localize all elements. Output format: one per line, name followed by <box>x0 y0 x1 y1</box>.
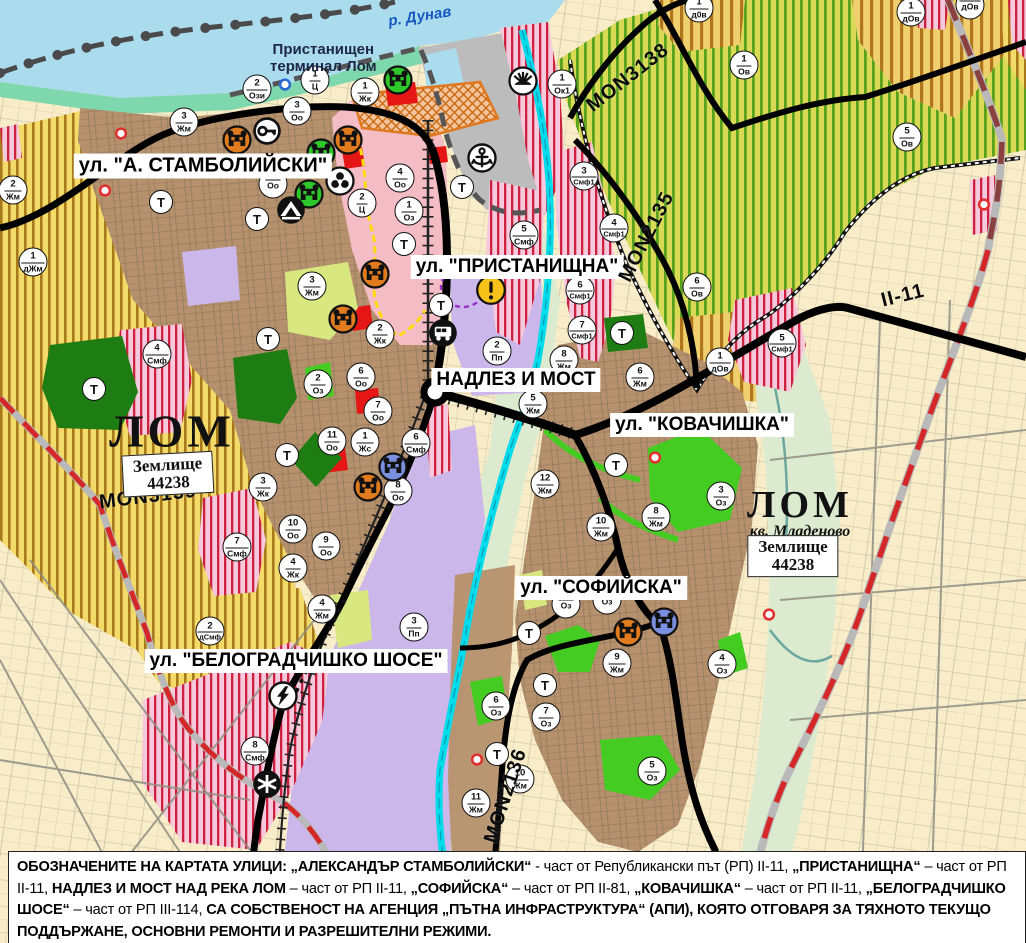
legend-note-segment: – част от РП II-11, <box>741 881 866 897</box>
legend-note-segment: ОБОЗНАЧЕНИТЕ НА КАРТАТА УЛИЦИ: <box>17 859 291 875</box>
legend-note-segment: „АЛЕКСАНДЪР СТАМБОЛИЙСКИ“ <box>291 859 532 875</box>
legend-note-segment: „КОВАЧИШКА“ <box>634 881 741 897</box>
legend-note-segment: НАДЛЕЗ И МОСТ НАД РЕКА ЛОМ <box>52 881 286 897</box>
zoning-map: 2Ози1Ц1Жк3Оо3Жм2Жм1дЖм4Оо2Ц1ОзОо3Жм1Ок13… <box>0 0 1026 943</box>
legend-note-segment: „СОФИЙСКА“ <box>411 881 509 897</box>
legend-note-segment: – част от РП II-81, <box>508 881 634 897</box>
roundabout <box>424 381 446 403</box>
legend-note-segment: – част от РП III-114, <box>70 902 207 918</box>
zone-production-small <box>182 246 240 306</box>
legend-note: ОБОЗНАЧЕНИТЕ НА КАРТАТА УЛИЦИ: „АЛЕКСАНД… <box>8 851 1026 943</box>
legend-note-segment: - част от Републикански път (РП) II-11, <box>531 859 792 875</box>
map-canvas <box>0 0 1026 943</box>
legend-note-segment: „ПРИСТАНИЩНА“ <box>792 859 920 875</box>
legend-note-segment: – част от РП II-11, <box>286 881 411 897</box>
